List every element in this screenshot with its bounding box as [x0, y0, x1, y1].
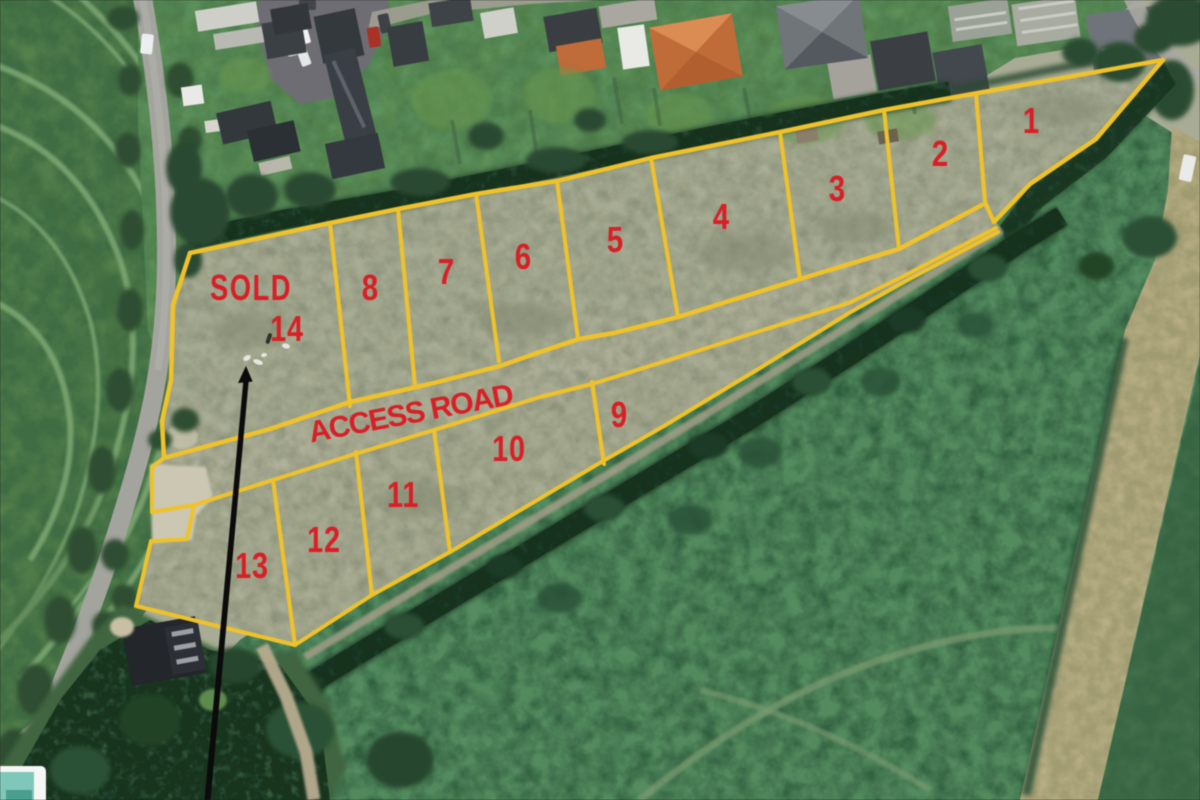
svg-text:7: 7 [438, 251, 454, 291]
svg-text:5: 5 [607, 219, 623, 259]
svg-text:2: 2 [932, 133, 948, 173]
svg-text:6: 6 [515, 236, 531, 276]
svg-text:4: 4 [713, 196, 730, 236]
svg-text:11: 11 [387, 474, 419, 515]
svg-text:13: 13 [235, 545, 269, 586]
svg-text:SOLD: SOLD [210, 267, 292, 308]
svg-text:9: 9 [611, 394, 627, 434]
svg-text:3: 3 [829, 168, 845, 208]
svg-text:1: 1 [1023, 100, 1039, 140]
svg-text:14: 14 [270, 308, 304, 349]
svg-text:10: 10 [492, 428, 526, 469]
svg-text:8: 8 [362, 267, 378, 307]
svg-text:12: 12 [307, 519, 341, 560]
